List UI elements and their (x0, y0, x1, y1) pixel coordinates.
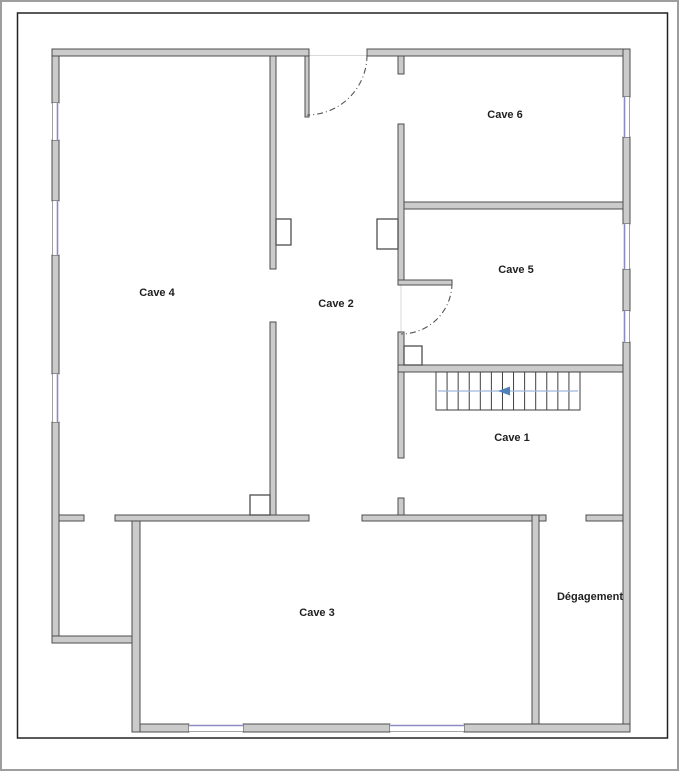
wall-segment (586, 515, 623, 521)
wall-segment (270, 56, 276, 269)
wall-segment (362, 515, 546, 521)
wall-segment (52, 636, 140, 643)
wall-segment (532, 515, 539, 724)
wall-segment (270, 322, 276, 515)
wall-segment (243, 724, 390, 732)
room-label-cave-6: Cave 6 (487, 109, 522, 121)
wall-segment (305, 56, 309, 117)
floor-plan: Cave 4Cave 2Cave 6Cave 5Cave 1Cave 3Déga… (0, 0, 679, 771)
wall-segment (398, 365, 623, 372)
pillar (276, 219, 291, 245)
wall-segment (623, 49, 630, 97)
wall-segment (398, 280, 452, 285)
wall-segment (623, 269, 630, 311)
wall-segment (52, 49, 59, 103)
floor-plan-drawing (2, 2, 679, 771)
pillar (404, 346, 422, 365)
pillar (250, 495, 270, 515)
door-swing-arc (307, 55, 367, 115)
room-label-degagement: Dégagement (557, 591, 623, 603)
wall-segment (52, 255, 59, 374)
door-swing-arc (401, 283, 452, 334)
wall-segment (52, 49, 309, 56)
wall-segment (464, 724, 630, 732)
wall-segment (52, 422, 59, 643)
room-label-cave-4: Cave 4 (139, 287, 174, 299)
room-label-cave-1: Cave 1 (494, 432, 529, 444)
room-label-cave-2: Cave 2 (318, 298, 353, 310)
wall-segment (623, 342, 630, 732)
wall-segment (52, 140, 59, 201)
wall-segment (398, 124, 404, 280)
wall-segment (404, 202, 623, 209)
wall-segment (132, 724, 189, 732)
wall-segment (367, 49, 630, 56)
wall-segment (132, 515, 140, 732)
wall-segment (398, 56, 404, 74)
wall-segment (59, 515, 84, 521)
room-label-cave-3: Cave 3 (299, 607, 334, 619)
pillar (377, 219, 398, 249)
wall-segment (398, 332, 404, 458)
room-label-cave-5: Cave 5 (498, 264, 533, 276)
wall-segment (115, 515, 309, 521)
wall-segment (623, 137, 630, 224)
